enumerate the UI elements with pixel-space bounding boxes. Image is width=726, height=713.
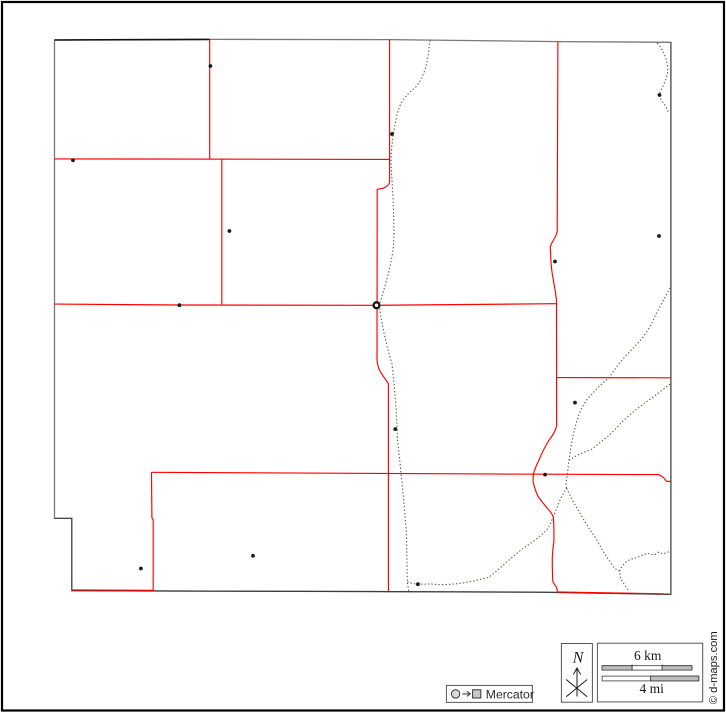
svg-text:© d-maps.com: © d-maps.com xyxy=(708,631,720,704)
svg-text:6 km: 6 km xyxy=(634,648,662,663)
svg-text:Mercator: Mercator xyxy=(486,687,534,701)
svg-text:N: N xyxy=(572,650,585,667)
svg-text:4 mi: 4 mi xyxy=(640,681,665,696)
